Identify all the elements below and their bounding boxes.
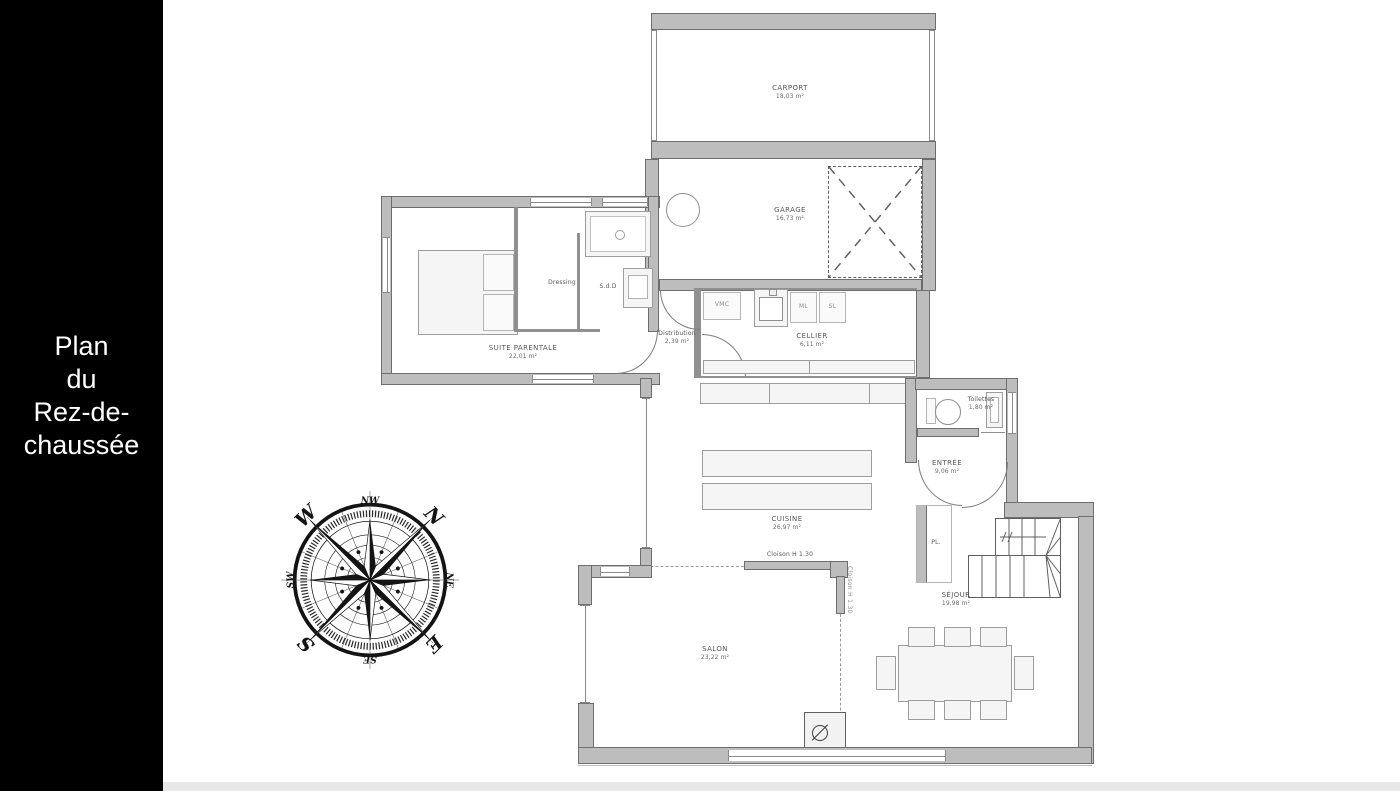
room-label-entree: ENTRÉE 9,06 m² xyxy=(912,459,982,476)
partition xyxy=(700,376,917,378)
room-name: CUISINE xyxy=(771,515,802,523)
room-name: S.d.D xyxy=(599,283,616,290)
cloison-text: Cloison H 1.30 xyxy=(767,551,813,558)
room-area: 18,03 m² xyxy=(755,93,825,101)
room-name: SALON xyxy=(702,645,728,653)
window xyxy=(602,198,648,206)
room-label-sdd: S.d.D xyxy=(590,283,626,291)
compass-ne: NE xyxy=(443,571,453,587)
window xyxy=(642,398,650,548)
room-label-distribution: Distribution 2,39 m² xyxy=(639,330,715,346)
room-area: 23,22 m² xyxy=(680,654,750,662)
dining-chair xyxy=(876,656,896,690)
room-area: 22,01 m² xyxy=(453,353,593,361)
room-area: 26,97 m² xyxy=(752,524,822,532)
shower-drain-icon xyxy=(615,230,625,240)
kitchen-island xyxy=(702,483,872,510)
room-area: 1,80 m² xyxy=(946,404,1016,412)
partition xyxy=(514,207,518,331)
window xyxy=(580,605,590,703)
ml-label: ML xyxy=(790,303,817,310)
utility-sink xyxy=(754,289,788,327)
room-area: 16,73 m² xyxy=(755,215,825,223)
wall xyxy=(922,159,936,291)
wall xyxy=(915,378,1018,390)
vmc-label: VMC xyxy=(703,301,741,308)
door-threshold xyxy=(981,432,1005,433)
room-name: Toilettes xyxy=(968,396,995,403)
bed-pillow xyxy=(483,294,514,331)
partition xyxy=(700,288,917,290)
wall xyxy=(917,428,979,437)
room-label-cuisine: CUISINE 26,97 m² xyxy=(752,515,822,532)
floor-plan: CARPORT 18,03 m² GARAGE 16,73 m² xyxy=(0,0,1400,791)
water-heater-icon xyxy=(666,193,700,227)
room-name: GARAGE xyxy=(774,206,806,214)
room-label-sejour: SÉJOUR 19,98 m² xyxy=(921,591,991,608)
dining-chair xyxy=(908,700,935,720)
room-label-cellier: CELLIER 6,11 m² xyxy=(777,332,847,349)
cloison-text: Cloison H 1.30 xyxy=(846,566,853,614)
wall xyxy=(381,373,660,385)
kitchen-counter xyxy=(700,383,908,404)
dining-chair xyxy=(1014,656,1034,690)
partition xyxy=(514,329,600,332)
wall xyxy=(916,290,930,378)
room-label-suite: SUITE PARENTALE 22,01 m² xyxy=(453,344,593,361)
window xyxy=(532,375,594,383)
window xyxy=(530,198,592,206)
sl-label: SL xyxy=(819,303,846,310)
dining-chair xyxy=(908,627,935,647)
door-arc xyxy=(660,290,700,330)
room-label-toilettes: Toilettes 1,80 m² xyxy=(946,396,1016,412)
wall xyxy=(640,378,652,398)
room-name: Distribution xyxy=(658,330,695,337)
half-wall xyxy=(744,561,836,570)
garage-reserved-area xyxy=(828,166,922,278)
room-area: 19,98 m² xyxy=(921,600,991,608)
room-name: SÉJOUR xyxy=(942,591,971,599)
window xyxy=(383,237,390,293)
carport-post xyxy=(651,30,657,141)
room-area: 9,06 m² xyxy=(912,468,982,476)
dining-table xyxy=(898,645,1012,702)
room-name: CARPORT xyxy=(772,84,808,92)
room-label-dressing: Dressing xyxy=(534,279,590,287)
compass-nw: NW xyxy=(360,497,380,507)
wall xyxy=(1078,516,1094,764)
wall xyxy=(651,141,936,159)
wall-edge xyxy=(578,765,1092,766)
window xyxy=(600,567,630,576)
room-name: PL. xyxy=(931,539,940,546)
dining-chair xyxy=(980,627,1007,647)
room-label-salon: SALON 23,22 m² xyxy=(680,645,750,662)
cloison-label-top: Cloison H 1.30 xyxy=(744,551,836,559)
stove-icon xyxy=(804,712,846,748)
cloison-label-side: Cloison H 1.30 xyxy=(846,566,853,626)
compass-sw: SW xyxy=(287,571,297,589)
room-name: SUITE PARENTALE xyxy=(489,344,557,352)
washbasin xyxy=(623,268,653,308)
room-name: CELLIER xyxy=(796,332,827,340)
room-area: 2,39 m² xyxy=(639,338,715,346)
room-name: Dressing xyxy=(548,279,576,286)
room-label-garage: GARAGE 16,73 m² xyxy=(755,206,825,223)
room-label-carport: CARPORT 18,03 m² xyxy=(755,84,825,101)
window xyxy=(728,750,946,761)
compass-se: SE xyxy=(363,653,377,663)
room-label-pl: PL. xyxy=(922,539,950,547)
half-wall xyxy=(836,576,845,614)
bed-pillow xyxy=(483,254,514,291)
wall xyxy=(651,13,936,30)
room-area: 6,11 m² xyxy=(777,341,847,349)
wall xyxy=(905,378,917,463)
cellier-counter xyxy=(703,360,915,374)
dining-chair xyxy=(944,700,971,720)
compass-rose: N E S W NW NE SE SW xyxy=(231,441,508,718)
slide: Plan du Rez-de- chaussée CARPORT 18,03 m… xyxy=(0,0,1400,791)
room-name: ENTRÉE xyxy=(932,459,962,467)
dining-chair xyxy=(980,700,1007,720)
dining-chair xyxy=(944,627,971,647)
garage-cross-icon xyxy=(829,167,921,277)
kitchen-island xyxy=(702,450,872,477)
carport-post xyxy=(929,30,935,141)
wall xyxy=(578,565,592,605)
shower xyxy=(585,211,651,257)
